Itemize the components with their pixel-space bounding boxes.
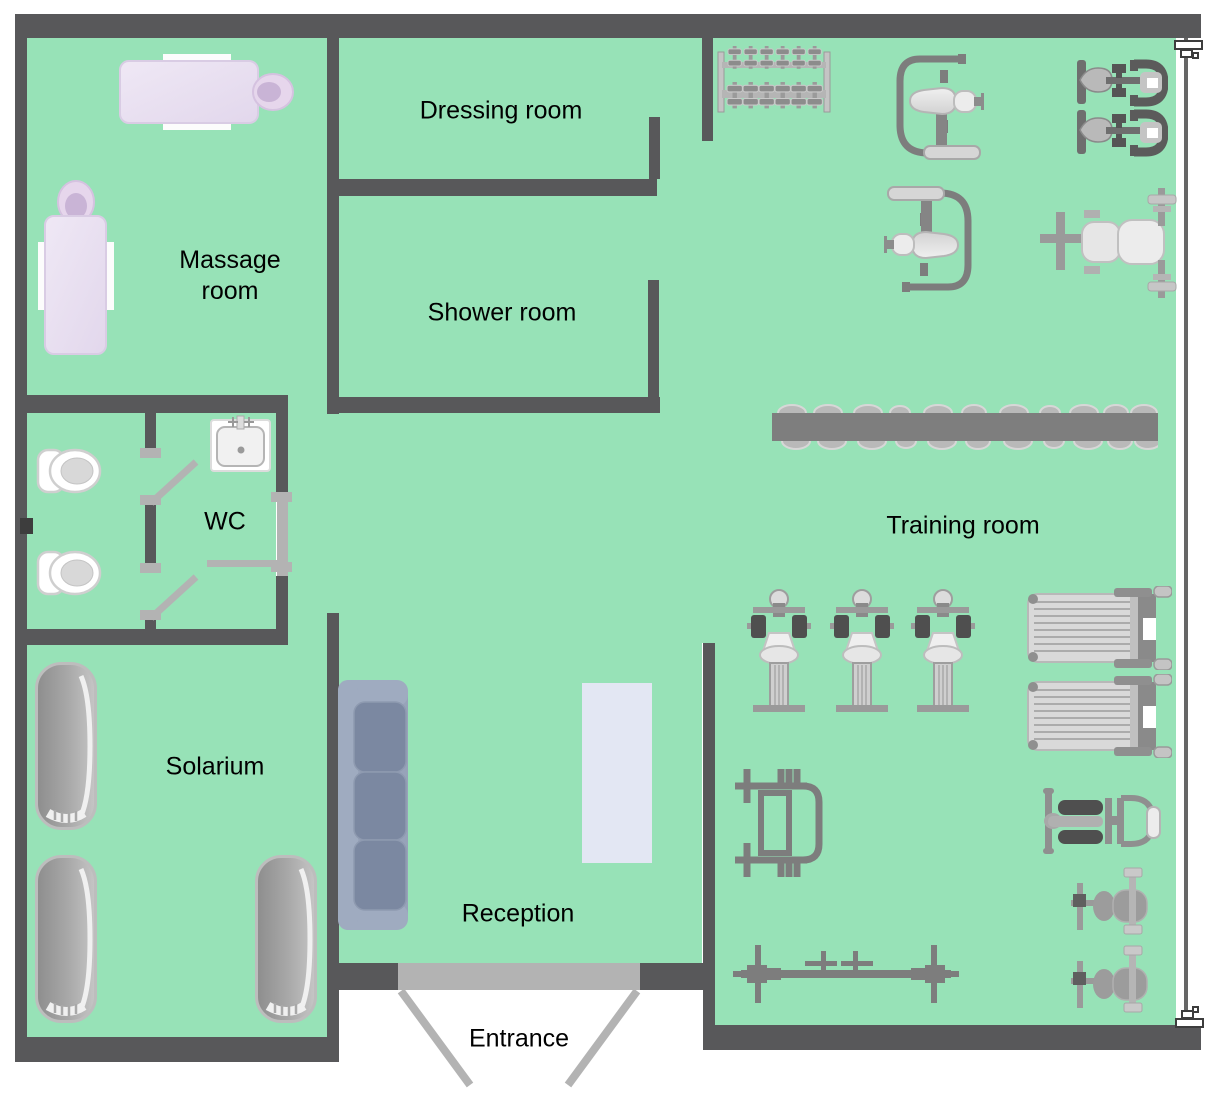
massage-room-label: Massage room <box>155 245 305 308</box>
hyperextension-bench-icon <box>1071 866 1159 938</box>
floor-plan: Massage room Dressing room Shower room W… <box>0 0 1221 1100</box>
window-marker-top-nub <box>1192 52 1199 59</box>
recumbent-bike-icon <box>1043 788 1163 854</box>
massage-table-icon <box>33 176 117 358</box>
treadmill-icon <box>1026 674 1172 758</box>
shoulder-press-machine-icon <box>884 50 984 162</box>
barbell-storage-rack-icon <box>772 404 1158 450</box>
squat-rack-icon <box>733 761 825 885</box>
entrance-right-leaf <box>568 991 637 1085</box>
entrance-label: Entrance <box>469 1023 569 1054</box>
entrance-left-leaf <box>401 991 470 1085</box>
wc-stall1-leaf <box>151 462 196 503</box>
exercise-bike-icon <box>830 589 894 713</box>
hyperextension-bench-icon <box>1071 944 1159 1016</box>
dumbbell-rack-icon <box>716 46 832 118</box>
training-room-label: Training room <box>886 510 1039 541</box>
treadmill-icon <box>1026 586 1172 670</box>
reception-label: Reception <box>462 898 575 929</box>
tanning-bed-icon <box>35 662 97 830</box>
tanning-bed-icon <box>255 855 317 1023</box>
window-marker-bottom-bar <box>1175 1018 1204 1028</box>
massage-table-icon <box>118 52 298 132</box>
tanning-bed-icon <box>35 855 97 1023</box>
exercise-bike-icon <box>911 589 975 713</box>
shoulder-press-machine-icon <box>884 184 984 296</box>
window-marker-bottom-nub <box>1192 1006 1199 1013</box>
pec-deck-machine-icon <box>1072 58 1168 108</box>
solarium-label: Solarium <box>166 751 265 782</box>
wc-label: WC <box>204 506 246 537</box>
sink-icon <box>210 414 272 472</box>
sofa-icon <box>336 678 410 932</box>
pec-deck-machine-icon <box>1072 108 1168 158</box>
dressing-room-label: Dressing room <box>420 95 583 126</box>
exercise-bike-icon <box>747 589 811 713</box>
bench-with-barbell-icon <box>1040 188 1180 298</box>
toilet-icon <box>35 548 105 598</box>
wc-stall2-leaf <box>151 577 196 618</box>
toilet-icon <box>35 446 105 496</box>
floor-barbell-icon <box>733 943 959 1005</box>
door-leaves-overlay <box>0 0 1221 1100</box>
shower-room-label: Shower room <box>428 297 577 328</box>
reception-desk <box>582 683 652 863</box>
